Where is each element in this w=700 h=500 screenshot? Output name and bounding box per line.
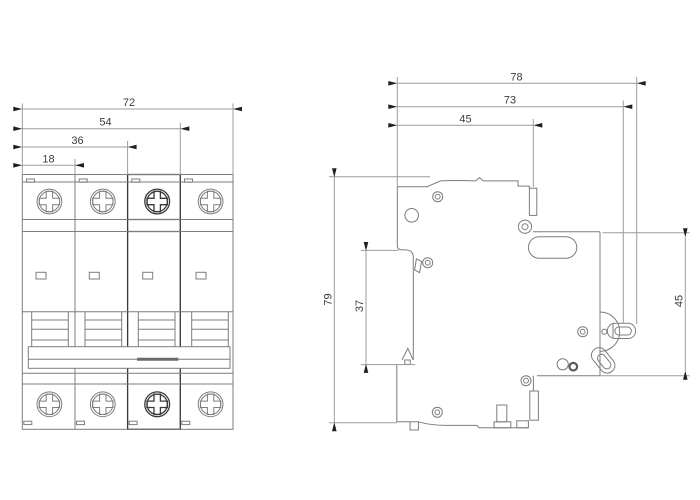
dim-side-overall-depth: 78 — [510, 71, 522, 83]
screw-head-icon — [145, 189, 170, 214]
recess-tab — [415, 259, 422, 273]
dim-side-front-face-height: 45 — [673, 295, 685, 307]
terminal-post — [497, 405, 507, 422]
screw-head-icon — [90, 189, 115, 214]
rail-clip-foot — [410, 422, 418, 430]
dim-side-overall-height: 79 — [323, 293, 335, 305]
side-view — [397, 178, 636, 430]
toggle-lever-on — [607, 323, 635, 338]
dim-front-width-2-poles: 36 — [71, 135, 83, 147]
label-slot — [528, 237, 576, 259]
dim-front-overall-width: 72 — [123, 97, 135, 109]
dimension-drawing-page: 72 54 36 18 78 73 45 79 37 45 — [0, 0, 700, 500]
dim-side-depth-to-toggle: 73 — [504, 95, 516, 107]
screw-head-icon — [90, 392, 115, 417]
screw-head-icon — [37, 189, 62, 214]
test-button — [570, 363, 578, 371]
dim-side-depth-to-front-step: 45 — [459, 113, 471, 125]
rail-latch — [402, 348, 413, 360]
screw-head-icon — [37, 392, 62, 417]
front-step-tab — [529, 188, 536, 215]
screw-head-icon — [198, 392, 223, 417]
bottom-notches — [24, 421, 190, 424]
dim-side-rail-recess-height: 37 — [354, 300, 366, 312]
screw-head-icon — [145, 392, 170, 417]
handle-tie-bar — [28, 347, 230, 369]
bottom-profile — [418, 422, 528, 428]
highlighted-module-outline — [128, 175, 181, 430]
front-view — [22, 175, 233, 430]
rivet-icons — [405, 192, 588, 418]
screw-head-icon — [198, 189, 223, 214]
dimension-lines — [22, 77, 689, 423]
dim-front-width-1-pole: 18 — [42, 153, 54, 165]
side-top-profile — [397, 178, 529, 189]
toggle-levers — [32, 312, 229, 347]
toggle-hub — [600, 312, 620, 351]
toggle-lever-off — [588, 345, 618, 376]
terminal-base — [494, 422, 511, 428]
dimension-labels: 72 54 36 18 78 73 45 79 37 45 — [42, 71, 685, 312]
dim-front-width-3-poles: 54 — [99, 117, 111, 129]
dimension-drawing-svg: 72 54 36 18 78 73 45 79 37 45 — [0, 0, 700, 500]
